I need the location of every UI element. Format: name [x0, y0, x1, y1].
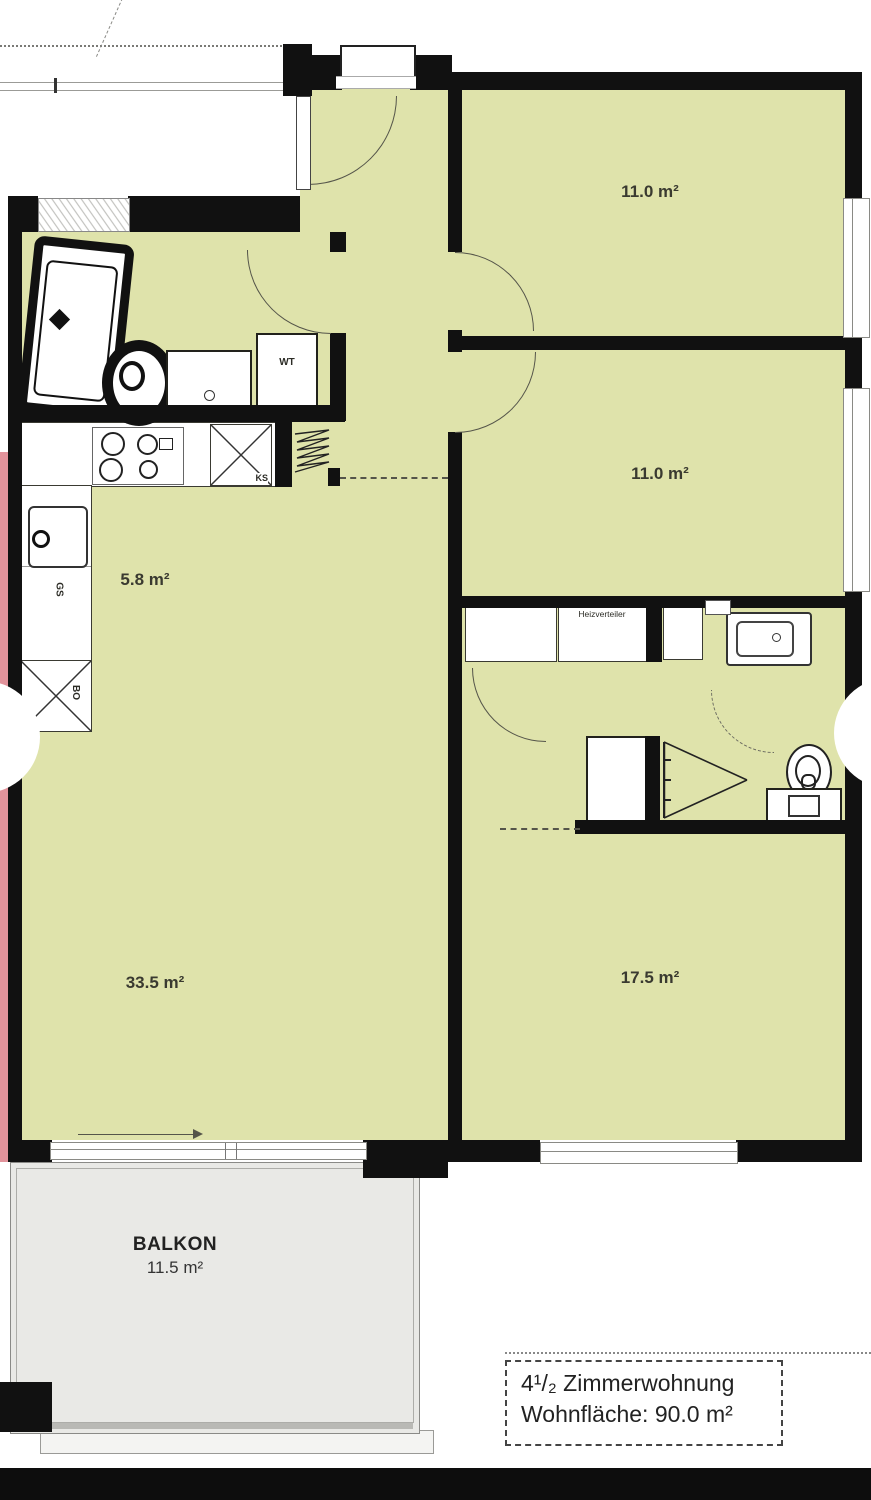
wall-bottom-d: [736, 1140, 862, 1162]
heizverteiler-label: Heizverteiler: [562, 609, 642, 619]
neighbor-rail-tick: [54, 78, 57, 93]
neighbor-dotted-line: [0, 45, 286, 47]
drain-dot: [772, 633, 781, 642]
window-line: [852, 389, 853, 591]
window-mid-tick: [225, 1143, 237, 1159]
fridge-label: KS: [255, 473, 268, 483]
neighbor-diagonal-line: [96, 0, 123, 57]
slider-arrow-head-icon: [193, 1129, 203, 1139]
bath1-window: [38, 198, 130, 232]
floor-plan: WT KS GS BO Heizverteiler: [0, 0, 871, 1500]
dishwasher-label: GS: [54, 582, 65, 596]
oven-label: BO: [70, 685, 81, 700]
entry-door-leaf-top: [340, 45, 416, 79]
room2-area-label: 11.0 m²: [590, 464, 730, 484]
wall-corridor-vert-post: [448, 330, 462, 352]
hall-closet-2: [663, 606, 703, 660]
apartment-info-box: 4¹/₂ Zimmerwohnung Wohnfläche: 90.0 m²: [505, 1360, 783, 1446]
wall-right-b: [845, 336, 862, 388]
washer-dryer-tower: [586, 736, 647, 826]
wall-bath1-top-a: [8, 196, 38, 232]
burner-icon: [101, 432, 125, 456]
wall-kitchen-stub: [275, 422, 292, 487]
bedroom-bottom-window: [540, 1142, 738, 1164]
wall-room1-room2-divider: [462, 336, 845, 350]
bottom-letterbox-bar: [0, 1468, 871, 1500]
fridge-box: KS: [210, 424, 272, 486]
info-line-rooms: 4¹/₂ Zimmerwohnung: [521, 1370, 781, 1397]
washing-machine-1: [166, 350, 252, 412]
bidet-washbasin: [766, 788, 842, 824]
bidet-inner: [788, 795, 820, 817]
wall-corridor-vert-b: [448, 432, 462, 1162]
balcony-name: BALKON: [95, 1234, 255, 1256]
window-line: [541, 1151, 737, 1152]
neighbor-rail-line-1: [0, 82, 286, 83]
washbasin-1-label: WT: [258, 357, 316, 368]
hall-boundary-dashline: [500, 828, 580, 830]
entry-hall-door-leaf: [296, 96, 311, 190]
pink-strip: [0, 452, 8, 1162]
room1-right-window: [843, 198, 870, 338]
basin-inner: [736, 621, 794, 657]
shower-icon: [663, 740, 749, 820]
closet-divider: [646, 604, 662, 662]
small-wall-box: [705, 600, 731, 615]
wall-entry-left-block: [283, 44, 312, 96]
balcony-slider-window: [50, 1142, 367, 1160]
balcony-inner-rail: [16, 1168, 414, 1423]
stove-knob: [159, 438, 173, 450]
stove: [92, 427, 184, 485]
wall-bottom-c: [462, 1140, 540, 1162]
neighbor-rail-line-2: [0, 90, 286, 91]
wall-right-a: [845, 72, 862, 198]
washbasin-2: [726, 612, 812, 666]
info-line-area: Wohnfläche: 90.0 m²: [521, 1401, 781, 1428]
hall-closet-1: [465, 606, 557, 662]
dashline-end-post: [328, 468, 340, 486]
wall-bath1-right-upper: [330, 232, 346, 252]
window-line: [852, 199, 853, 337]
info-dotted-line: [505, 1352, 871, 1354]
balcony-label-group: BALKON 11.5 m²: [95, 1234, 255, 1278]
radiator-icon: [293, 428, 333, 474]
slider-arrow-line: [78, 1134, 196, 1135]
washer-tower-stripe: [645, 736, 660, 822]
burner-icon: [99, 458, 123, 482]
balcony-bottom-band: [17, 1423, 413, 1429]
wall-room1-top: [440, 72, 862, 90]
burner-icon: [139, 460, 158, 479]
kitchen-area-label: 5.8 m²: [90, 570, 200, 590]
wall-bottom-b: [363, 1140, 448, 1178]
entry-threshold: [336, 76, 416, 89]
wall-kitchen-top: [8, 405, 345, 422]
living-area-label: 33.5 m²: [95, 973, 215, 993]
room2-right-window: [843, 388, 870, 592]
kitchen-sink: [28, 506, 88, 568]
bedroom-area-label: 17.5 m²: [585, 968, 715, 988]
balcony: [10, 1162, 420, 1434]
faucet-icon: [32, 530, 50, 548]
washing-machine-dial: [204, 390, 215, 401]
wall-bath2-bottom: [575, 820, 845, 834]
wall-bottom-a: [8, 1140, 52, 1162]
toilet-1-inner: [119, 361, 145, 391]
washbasin-1: WT: [256, 333, 318, 407]
wall-bath1-top-b: [128, 196, 300, 232]
burner-icon: [137, 434, 158, 455]
wall-corridor-vert-a: [448, 90, 462, 252]
balcony-area: 11.5 m²: [95, 1258, 255, 1278]
kitchen-boundary-dashline: [340, 477, 448, 479]
room1-area-label: 11.0 m²: [580, 182, 720, 202]
wall-right-c: [845, 590, 862, 1162]
window-line: [51, 1149, 366, 1150]
balcony-black-block: [0, 1382, 52, 1432]
